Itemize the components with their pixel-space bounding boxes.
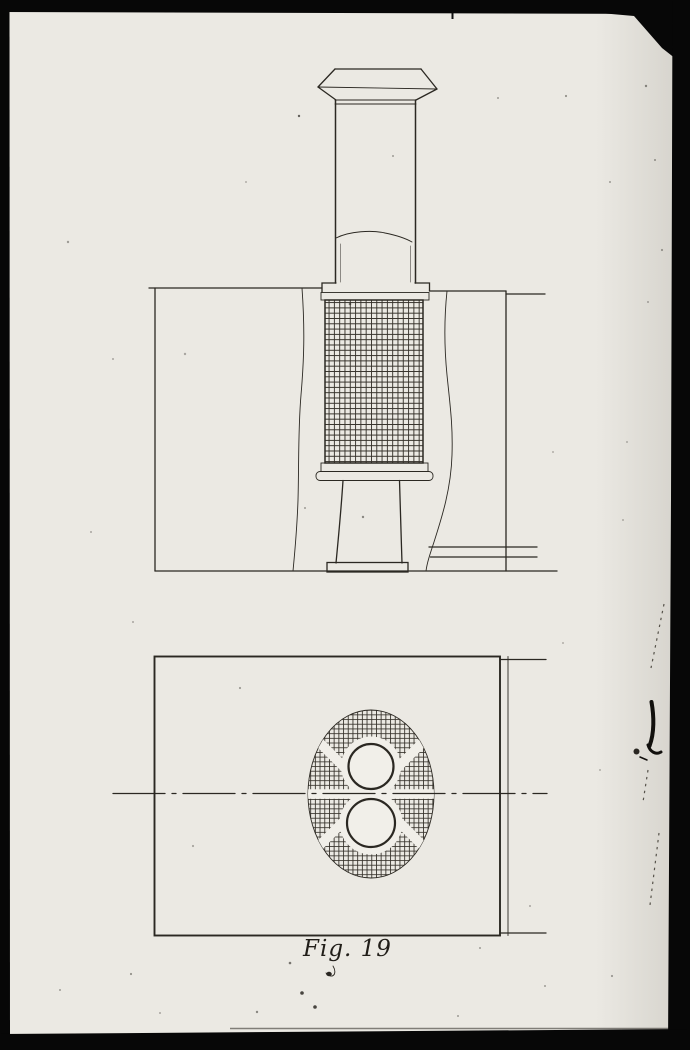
duct-circle-top	[349, 744, 394, 789]
mesh-grating-section	[316, 293, 433, 481]
paper-edge-shading	[596, 10, 676, 1035]
paper-background	[0, 0, 690, 1050]
duct-circle-bottom	[347, 799, 395, 847]
scanned-page: Fig. 19	[0, 0, 690, 1050]
caption-ink-blot	[326, 972, 332, 976]
page-border-left	[0, 0, 10, 1050]
figure-caption: Fig. 19	[303, 936, 423, 962]
page-border-top	[0, 0, 690, 14]
figure-drawing	[0, 0, 690, 1050]
grating-mesh	[325, 300, 423, 463]
